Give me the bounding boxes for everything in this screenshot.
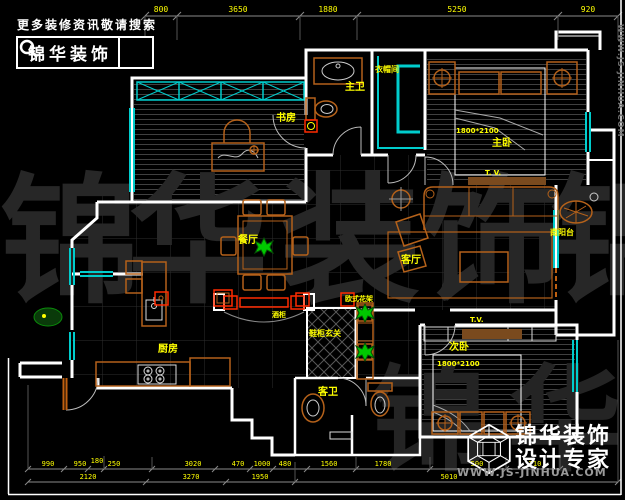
flower-stand-label: 欧式花架 (345, 294, 373, 303)
room-label-entry: 鞋柜玄关 (309, 328, 341, 338)
dim-bottom2: 2120 (80, 473, 97, 481)
room-label-closet: 衣帽间 (375, 64, 399, 74)
footer-url-text: WWW.JS-JINHUA.COM (457, 466, 607, 479)
bed-size-label: 1800*2100 (456, 127, 499, 135)
watermark-char: 锦 (0, 161, 140, 324)
tv-label: T.V. (470, 316, 484, 324)
room-label-balcony: 南阳台 (550, 227, 574, 237)
room-label-guest-bath: 客卫 (317, 385, 338, 398)
dim-bottom2: 1950 (252, 473, 269, 481)
dim-bottom: 1560 (321, 460, 338, 468)
dim-bottom: 3020 (185, 460, 202, 468)
room-label-living: 客厅 (400, 253, 421, 266)
room-label-study: 书房 (276, 111, 296, 124)
floorplan-page: 锦 华 装 饰 锦 锦 华 (0, 0, 625, 500)
dim-bottom: 480 (279, 460, 292, 468)
dim-top: 1880 (318, 5, 337, 14)
dim-top: 920 (581, 5, 596, 14)
dim-bottom: 180 (91, 457, 104, 465)
room-label-master-bath: 主卫 (345, 80, 365, 93)
dim-top: 5250 (447, 5, 466, 14)
dim-top: 3650 (228, 5, 247, 14)
master-toilet-icon (306, 98, 337, 120)
dim-bottom2: 5010 (441, 473, 458, 481)
entry-door-leaf (64, 378, 67, 410)
tv-label: T. V. (485, 169, 501, 177)
dim-bottom: 1000 (254, 460, 271, 468)
bed-size-label: 1800*2100 (437, 360, 480, 368)
dim-bottom: 990 (42, 460, 55, 468)
room-label-master-bedroom: 主卧 (492, 136, 512, 149)
room-label-kitchen: 厨房 (158, 342, 178, 355)
room-label-dining: 餐厅 (237, 233, 258, 246)
outdoor-plant (34, 308, 62, 326)
dim-bottom: 1780 (375, 460, 392, 468)
search-icon (118, 38, 152, 67)
guest-sink-icon (302, 394, 324, 422)
search-hint-text: 更多装修资讯敬请搜索 (17, 16, 157, 33)
dim-bottom: 950 (74, 460, 87, 468)
side-url-text: WWW.JS-JINHUA.COM (611, 24, 625, 138)
master-sink-icon (314, 58, 362, 84)
dim-bottom: 250 (108, 460, 121, 468)
wine-cabinet-label: 酒柜 (272, 310, 286, 319)
dim-top: 800 (154, 5, 169, 14)
dim-bottom: 470 (232, 460, 245, 468)
brand-logo-box: 锦华装饰 (16, 36, 154, 69)
floor-drain-icon (305, 120, 317, 132)
room-label-second-bedroom: 次卧 (449, 340, 469, 353)
dim-bottom2: 3270 (183, 473, 200, 481)
watermark-char: 饰 (422, 161, 562, 324)
tv-cabinet-master (468, 177, 546, 185)
